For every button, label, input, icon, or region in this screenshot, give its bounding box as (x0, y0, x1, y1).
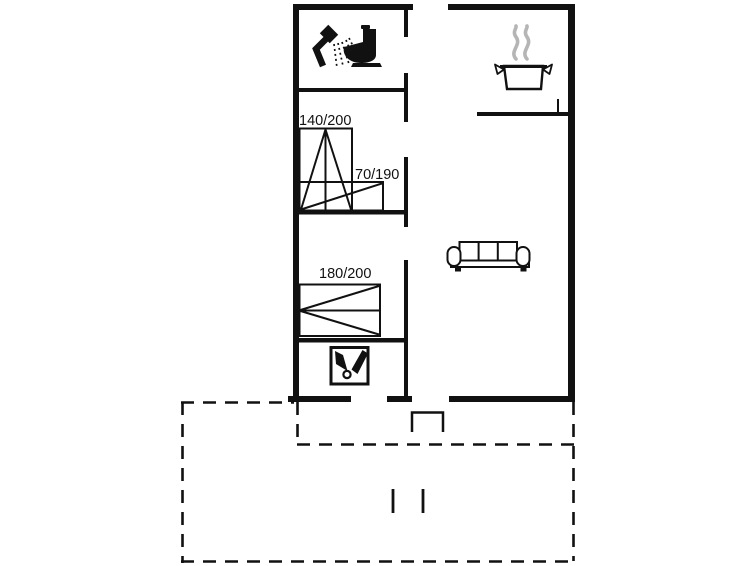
entrance-step (412, 413, 443, 433)
right-wall (568, 4, 575, 402)
steam-curl-right (525, 26, 529, 59)
wall-return-line (557, 99, 559, 114)
steam-curl-left (514, 26, 518, 59)
floor-plan-canvas: 140/200 70/190 180/200 (0, 0, 755, 566)
top-wall-right (448, 4, 575, 10)
central-wall-seg1 (404, 10, 408, 37)
cooking-pot-icon (495, 65, 552, 90)
central-wall-seg2 (404, 73, 408, 122)
sofa-icon (448, 242, 530, 272)
toilet-icon (344, 25, 382, 67)
bottom-wall-b (387, 396, 412, 402)
left-wall (293, 4, 299, 402)
bed-size-label: 140/200 (299, 113, 351, 129)
utility-tools-icon (331, 348, 368, 385)
terrace-dashed-outline (181, 402, 575, 563)
bed-180x200: 180/200 (300, 266, 381, 336)
steam-icon (514, 26, 529, 59)
bed-size-label: 180/200 (319, 266, 371, 282)
bottom-wall-c (449, 396, 575, 402)
kitchen-partition-wall (477, 112, 568, 116)
floor-plan: 140/200 70/190 180/200 (0, 0, 755, 566)
central-wall-seg4 (404, 260, 408, 396)
bottom-wall-a (288, 396, 351, 402)
bedroom2-bottom-wall (299, 338, 404, 343)
bed-size-label: 70/190 (355, 167, 399, 183)
central-wall-seg3 (404, 157, 408, 227)
top-wall-left (293, 4, 413, 10)
bathroom-bottom-wall (299, 88, 408, 92)
terrace-opening-ticks (393, 489, 423, 513)
